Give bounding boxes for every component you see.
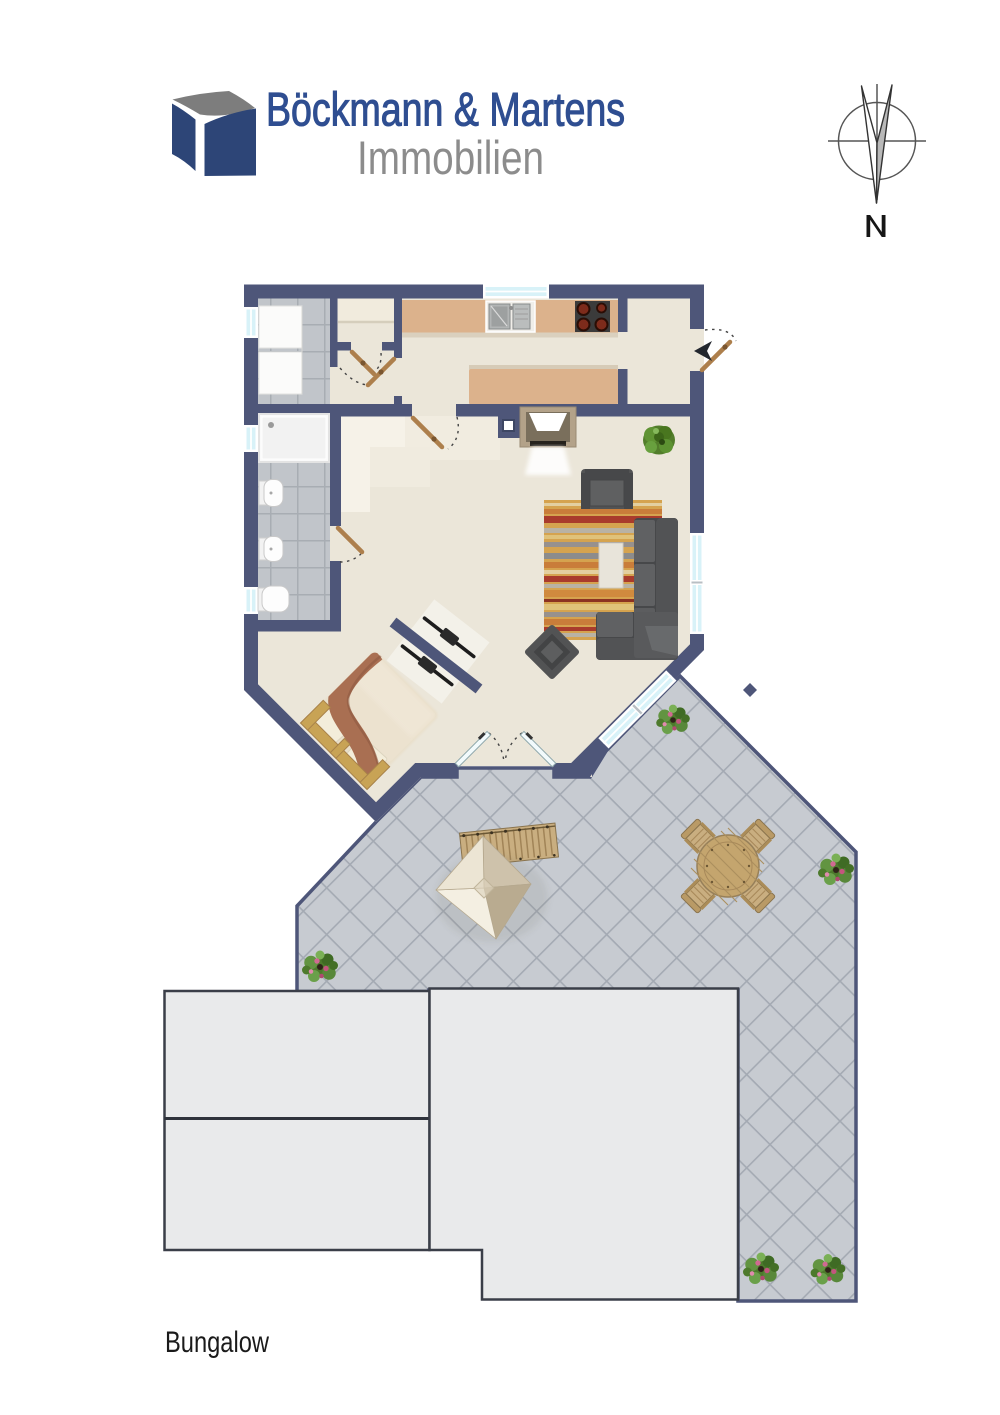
svg-text:Böckmann & Martens: Böckmann & Martens bbox=[266, 83, 625, 136]
svg-text:Bungalow: Bungalow bbox=[165, 1326, 269, 1359]
svg-text:Immobilien: Immobilien bbox=[357, 131, 544, 184]
